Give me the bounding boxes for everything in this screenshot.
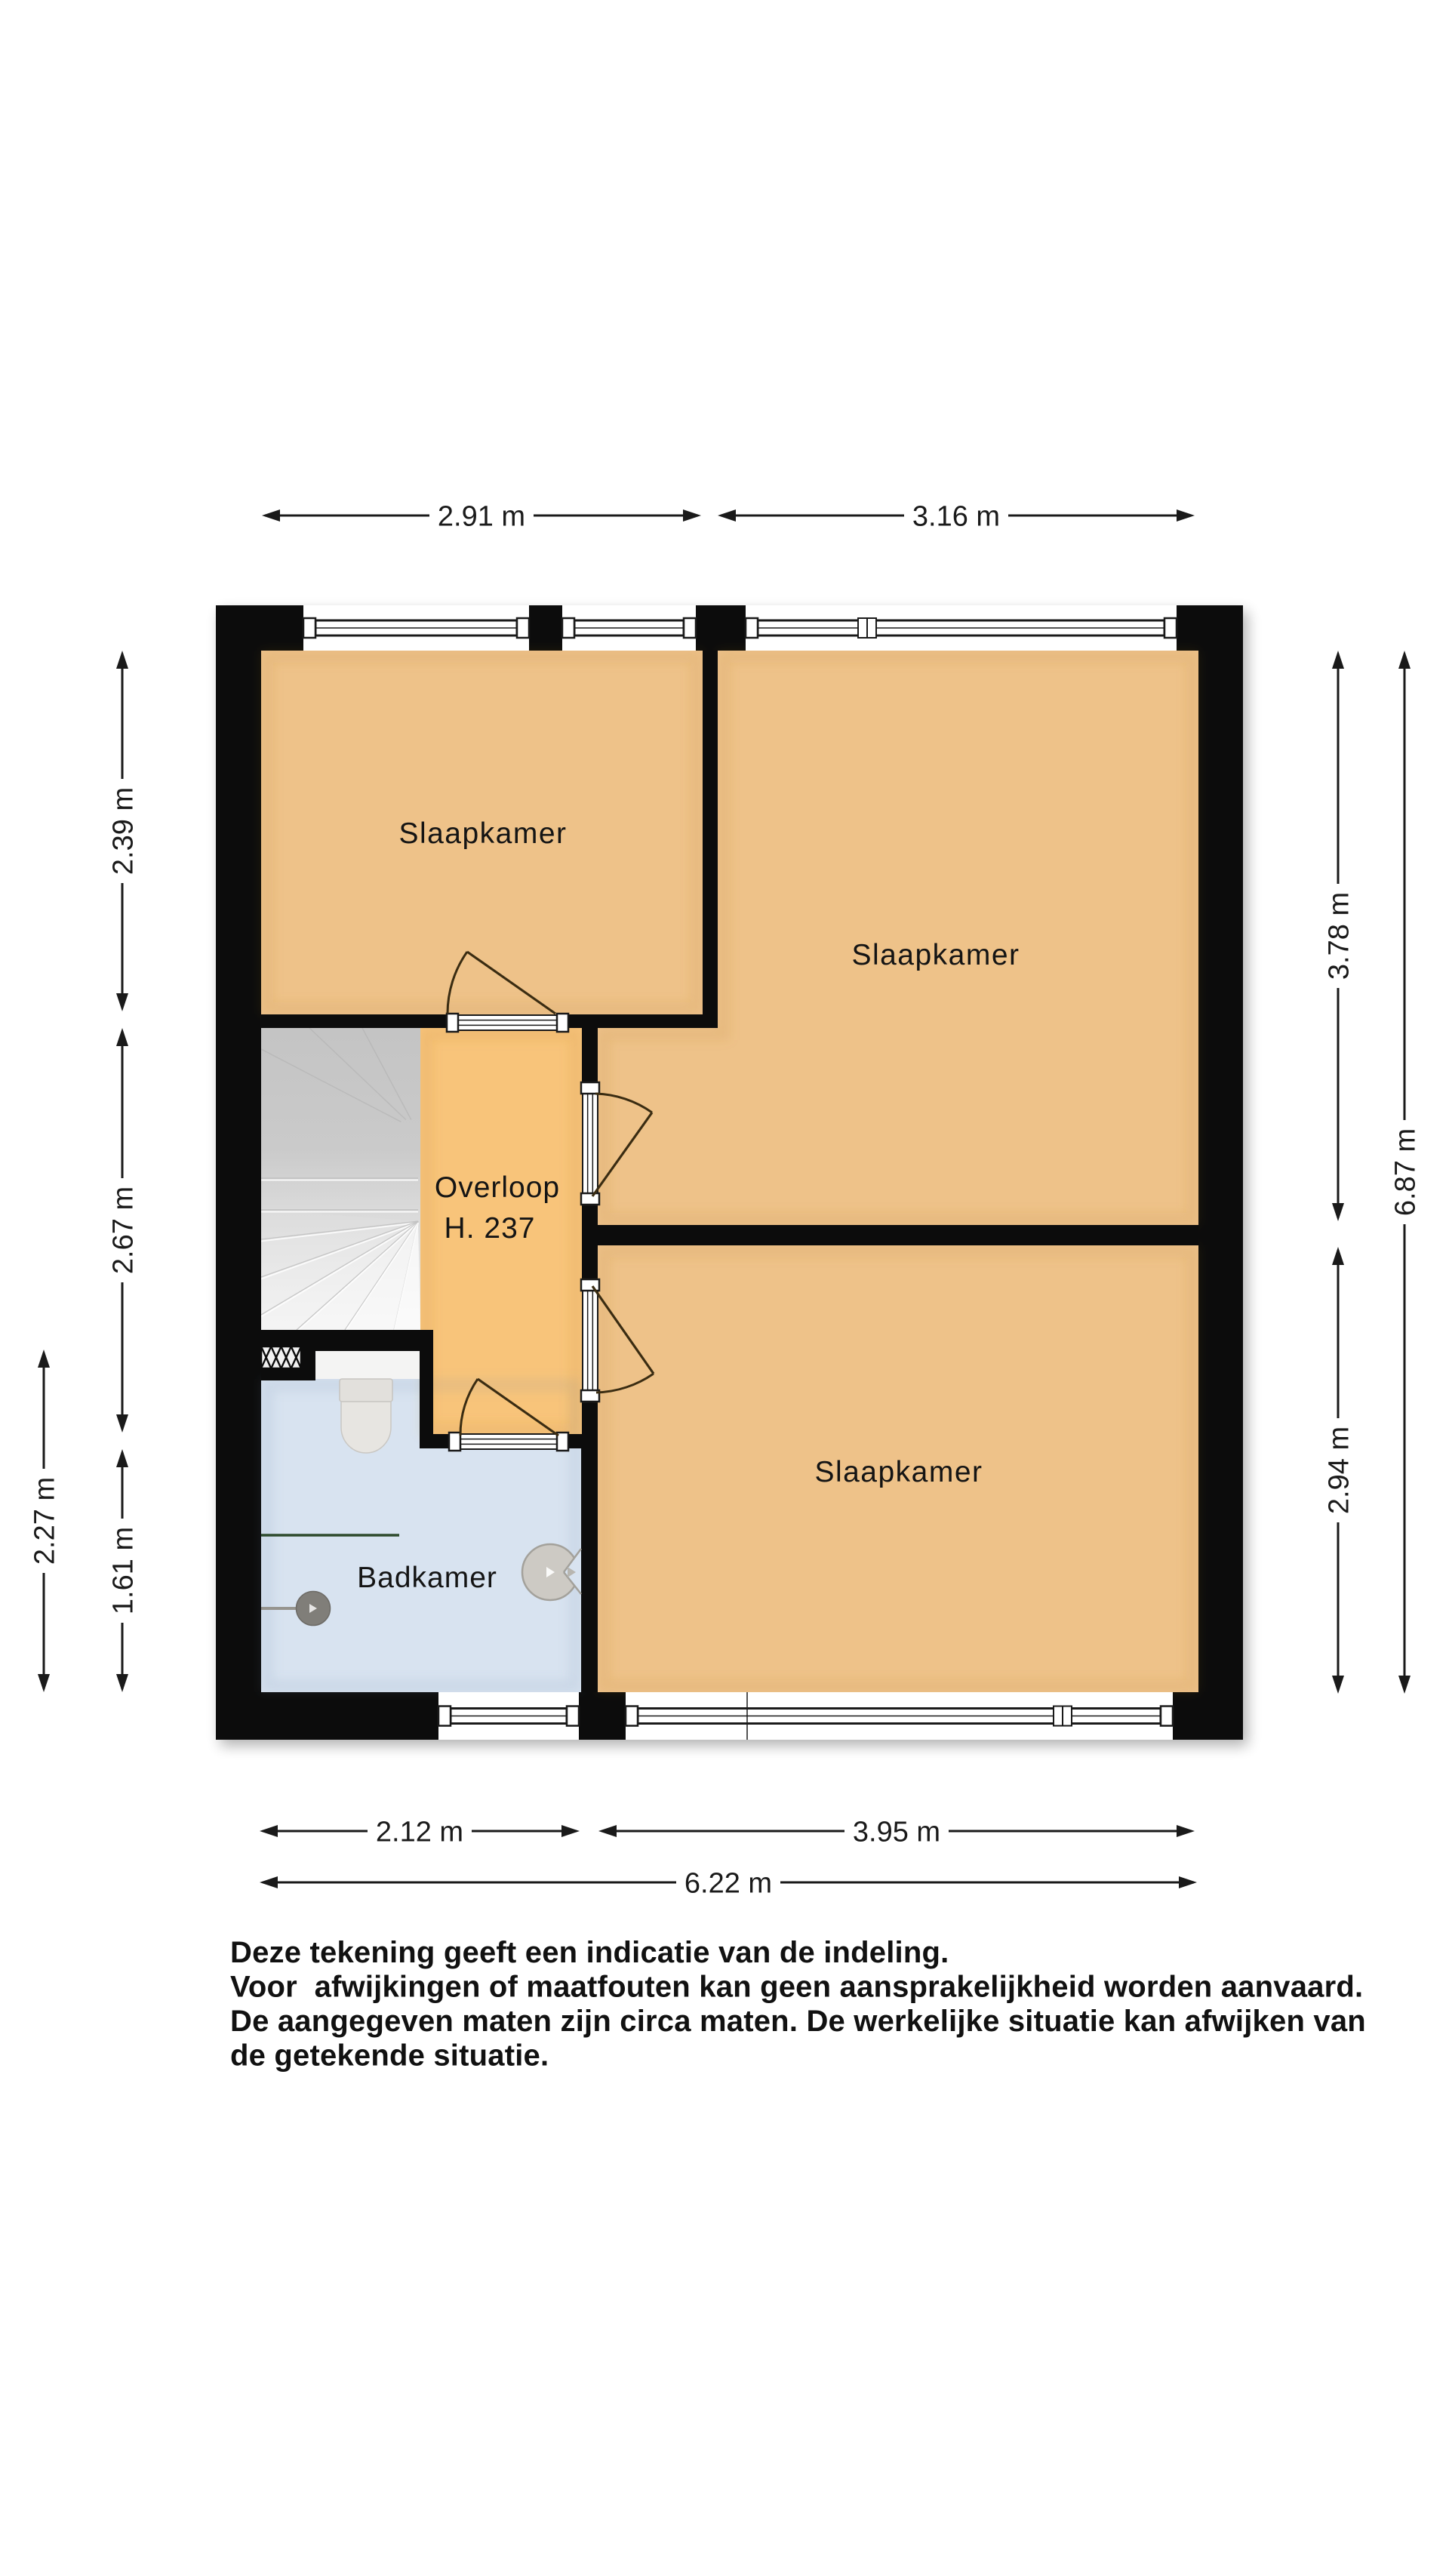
svg-text:De aangegeven maten zijn circa: De aangegeven maten zijn circa maten. De…: [230, 2005, 1366, 2038]
svg-text:2.94 m: 2.94 m: [1324, 1426, 1355, 1514]
svg-text:3.16 m: 3.16 m: [912, 501, 1000, 533]
svg-text:6.22 m: 6.22 m: [685, 1868, 772, 1900]
svg-text:3.78 m: 3.78 m: [1324, 892, 1355, 980]
svg-text:Slaapkamer: Slaapkamer: [814, 1456, 983, 1488]
svg-text:H. 237: H. 237: [445, 1212, 536, 1245]
svg-text:Overloop: Overloop: [435, 1171, 560, 1204]
svg-text:de getekende situatie.: de getekende situatie.: [230, 2039, 549, 2073]
svg-text:Deze tekening geeft een indica: Deze tekening geeft een indicatie van de…: [230, 1936, 949, 1969]
svg-text:2.67 m: 2.67 m: [108, 1186, 140, 1274]
svg-text:3.95 m: 3.95 m: [853, 1817, 940, 1848]
svg-text:2.91 m: 2.91 m: [438, 501, 525, 533]
svg-text:Slaapkamer: Slaapkamer: [398, 817, 567, 850]
svg-text:1.61 m: 1.61 m: [108, 1527, 140, 1614]
svg-text:Voor afwijkingen of maatfoute: Voor afwijkingen of maatfouten kan geen …: [230, 1971, 1363, 2004]
svg-text:6.87 m: 6.87 m: [1390, 1128, 1422, 1216]
svg-text:Badkamer: Badkamer: [357, 1562, 497, 1594]
svg-text:Slaapkamer: Slaapkamer: [851, 939, 1020, 971]
svg-text:2.27 m: 2.27 m: [29, 1477, 61, 1565]
svg-text:2.39 m: 2.39 m: [108, 787, 140, 875]
svg-text:2.12 m: 2.12 m: [376, 1817, 463, 1848]
